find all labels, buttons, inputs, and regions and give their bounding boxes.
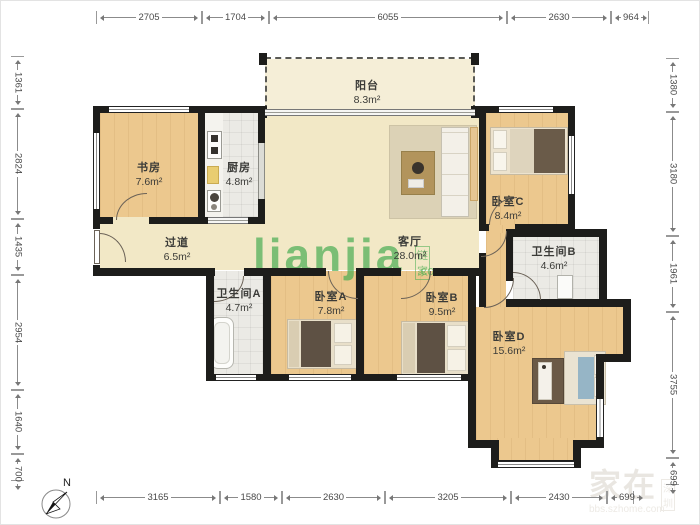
dimension-arrow bbox=[670, 304, 676, 311]
dimension-arrow bbox=[643, 15, 650, 21]
dimension-line bbox=[672, 320, 673, 372]
watermark-corner-url: bbs.szhome.com bbox=[589, 504, 665, 515]
dimension-arrow bbox=[97, 15, 104, 21]
dimension-arrow bbox=[503, 495, 510, 501]
window bbox=[568, 136, 575, 194]
wall bbox=[93, 217, 113, 224]
pillow bbox=[447, 325, 466, 347]
window bbox=[93, 133, 100, 209]
dimension-arrow bbox=[283, 495, 290, 501]
pillow bbox=[493, 152, 507, 171]
dimension-arrow bbox=[612, 15, 619, 21]
wall bbox=[263, 276, 271, 376]
dimension-right: 3755 bbox=[666, 312, 679, 458]
dimension-line bbox=[17, 435, 18, 446]
dimension-line bbox=[228, 497, 238, 498]
dimension-line bbox=[672, 398, 673, 450]
wall bbox=[468, 268, 476, 445]
wall bbox=[259, 53, 267, 65]
dimension-right: 3180 bbox=[666, 112, 679, 236]
dimension-arrow bbox=[261, 15, 268, 21]
dimension-line bbox=[17, 177, 18, 211]
dimension-line bbox=[17, 345, 18, 382]
dimension-line bbox=[277, 17, 375, 18]
dimension-arrow bbox=[599, 495, 606, 501]
dimension-arrow bbox=[15, 267, 21, 274]
dimension-arrow bbox=[274, 495, 281, 501]
dimension-value: 3180 bbox=[668, 161, 678, 186]
dimension-arrow bbox=[670, 313, 676, 320]
dimension-arrow bbox=[270, 15, 277, 21]
floor-plan: lianjia 链家 .com 家在 深圳 bbs.szhome.com N 书… bbox=[1, 1, 699, 524]
dimension-line bbox=[17, 283, 18, 320]
dimension-line bbox=[171, 497, 212, 498]
wall bbox=[623, 299, 631, 362]
dimension-value: 964 bbox=[621, 13, 641, 23]
dimension-value: 1580 bbox=[238, 493, 263, 503]
dimension-arrow bbox=[508, 15, 515, 21]
dimension-arrow bbox=[670, 113, 676, 120]
dimension-arrow bbox=[15, 391, 21, 398]
dimension-line bbox=[210, 17, 223, 18]
window bbox=[258, 143, 265, 199]
window bbox=[265, 109, 475, 116]
wall bbox=[506, 299, 631, 307]
dimension-line bbox=[401, 17, 499, 18]
wall bbox=[599, 229, 607, 307]
pillow bbox=[334, 323, 352, 343]
dimension-right: 1380 bbox=[666, 58, 679, 112]
dimension-value: 3755 bbox=[668, 372, 678, 397]
dimension-top: 964 bbox=[611, 11, 649, 24]
dimension-bottom: 3205 bbox=[385, 491, 511, 504]
floor-plan-canvas: lianjia 链家 .com 家在 深圳 bbs.szhome.com N 书… bbox=[0, 0, 700, 525]
dimension-left: 2824 bbox=[11, 109, 24, 219]
dimension-line bbox=[672, 244, 673, 261]
dimension-line bbox=[515, 17, 546, 18]
dimension-left: 1435 bbox=[11, 219, 24, 275]
dimension-value: 2630 bbox=[546, 13, 571, 23]
wall bbox=[198, 113, 205, 217]
study-floor bbox=[100, 113, 198, 217]
wall bbox=[358, 268, 401, 276]
dimension-value: 6055 bbox=[375, 13, 400, 23]
dimension-arrow bbox=[670, 450, 676, 457]
dimension-arrow bbox=[15, 101, 21, 108]
dimension-line bbox=[393, 497, 435, 498]
dimension-value: 699 bbox=[668, 468, 678, 488]
bed-duvet bbox=[301, 321, 331, 367]
wall bbox=[149, 217, 206, 224]
dimension-arrow bbox=[670, 237, 676, 244]
dimension-value: 699 bbox=[617, 493, 637, 503]
dimension-value: 2705 bbox=[136, 13, 161, 23]
dimension-arrow bbox=[194, 15, 201, 21]
dimension-line bbox=[104, 17, 136, 18]
dimension-top: 2630 bbox=[507, 11, 611, 24]
dimension-value: 1435 bbox=[13, 234, 23, 259]
compass-north-label: N bbox=[63, 477, 71, 489]
dimension-right: 1961 bbox=[666, 236, 679, 312]
dimension-line bbox=[572, 497, 599, 498]
bathtub-inner bbox=[214, 322, 230, 364]
bed-duvet bbox=[534, 129, 565, 173]
dimension-value: 1380 bbox=[668, 72, 678, 97]
sofa bbox=[441, 127, 469, 217]
dimension-value: 2630 bbox=[321, 493, 346, 503]
dimension-arrow bbox=[15, 211, 21, 218]
window bbox=[499, 106, 553, 113]
dimension-value: 700 bbox=[13, 464, 23, 484]
dimension-line bbox=[346, 497, 377, 498]
dimension-arrow bbox=[670, 104, 676, 111]
window bbox=[208, 217, 248, 224]
dimension-bottom: 699 bbox=[607, 491, 634, 504]
dimension-line bbox=[264, 497, 274, 498]
dimension-bottom: 1580 bbox=[220, 491, 282, 504]
dimension-bottom: 3165 bbox=[96, 491, 220, 504]
window bbox=[397, 374, 461, 381]
dimension-arrow bbox=[377, 495, 384, 501]
dimension-value: 2824 bbox=[13, 151, 23, 176]
dimension-left: 2954 bbox=[11, 275, 24, 390]
window bbox=[109, 106, 189, 113]
dimension-arrow bbox=[386, 495, 393, 501]
dimension-left: 1361 bbox=[11, 56, 24, 109]
dimension-arrow bbox=[608, 495, 615, 501]
wall bbox=[93, 268, 215, 276]
dimension-arrow bbox=[15, 486, 21, 493]
dimension-line bbox=[248, 17, 261, 18]
wardrobe-knob bbox=[542, 365, 546, 369]
dimension-arrow bbox=[670, 459, 676, 466]
pillow bbox=[447, 349, 466, 371]
wall bbox=[468, 440, 499, 448]
dimension-arrow bbox=[499, 15, 506, 21]
bedroom-d-bay-floor bbox=[497, 438, 575, 462]
dimension-arrow bbox=[212, 495, 219, 501]
dimension-bottom: 2430 bbox=[511, 491, 607, 504]
dimension-arrow bbox=[670, 490, 676, 497]
pillow bbox=[334, 345, 352, 365]
teapot bbox=[412, 162, 424, 174]
window bbox=[289, 374, 351, 381]
dimension-value: 3205 bbox=[435, 493, 460, 503]
dimension-arrow bbox=[603, 15, 610, 21]
dimension-line bbox=[290, 497, 321, 498]
dimension-value: 3165 bbox=[145, 493, 170, 503]
dimension-arrow bbox=[15, 446, 21, 453]
dimension-line bbox=[17, 227, 18, 234]
stove-burner bbox=[211, 135, 218, 142]
sink-basin bbox=[210, 193, 219, 202]
toilet bbox=[557, 275, 573, 299]
dimension-top: 1704 bbox=[202, 11, 269, 24]
dimension-top: 2705 bbox=[96, 11, 202, 24]
dimension-arrow bbox=[97, 495, 104, 501]
window bbox=[498, 461, 574, 468]
dimension-line bbox=[672, 287, 673, 304]
tv-console bbox=[470, 127, 478, 201]
dimension-arrow bbox=[15, 276, 21, 283]
compass: N bbox=[37, 477, 81, 523]
dimension-arrow bbox=[221, 495, 228, 501]
wall bbox=[506, 229, 607, 237]
dimension-arrow bbox=[15, 57, 21, 64]
wall bbox=[206, 268, 214, 381]
dimension-top: 6055 bbox=[269, 11, 507, 24]
wall bbox=[479, 106, 486, 231]
dimension-arrow bbox=[670, 228, 676, 235]
dimension-line bbox=[461, 497, 503, 498]
dimension-line bbox=[519, 497, 546, 498]
dimension-line bbox=[104, 497, 145, 498]
dimension-value: 1961 bbox=[668, 261, 678, 286]
pillow bbox=[493, 130, 507, 149]
dimension-line bbox=[17, 117, 18, 151]
dimension-line bbox=[672, 120, 673, 161]
dimension-value: 1640 bbox=[13, 409, 23, 434]
dimension-line bbox=[17, 260, 18, 267]
dimension-value: 2954 bbox=[13, 320, 23, 345]
bed-duvet bbox=[417, 323, 445, 373]
sink-faucet bbox=[211, 204, 217, 210]
wall bbox=[244, 268, 326, 276]
dimension-left: 1640 bbox=[11, 390, 24, 454]
dimension-value: 1704 bbox=[223, 13, 248, 23]
dimension-left: 700 bbox=[11, 454, 24, 481]
dimension-value: 1361 bbox=[13, 70, 23, 95]
balcony-window-dashed bbox=[265, 57, 475, 111]
wall bbox=[479, 224, 489, 231]
dimension-arrow bbox=[15, 220, 21, 227]
stove-burner bbox=[211, 147, 218, 154]
dimension-value: 2430 bbox=[546, 493, 571, 503]
cutting-board bbox=[207, 166, 219, 184]
dimension-line bbox=[162, 17, 194, 18]
bed-frame bbox=[289, 321, 299, 367]
bed-frame bbox=[403, 323, 415, 373]
dimension-line bbox=[17, 398, 18, 409]
dimension-arrow bbox=[203, 15, 210, 21]
tray bbox=[408, 179, 424, 188]
dimension-arrow bbox=[512, 495, 519, 501]
dimension-arrow bbox=[639, 495, 646, 501]
bed-blanket bbox=[578, 357, 594, 399]
dimension-arrow bbox=[670, 59, 676, 66]
dimension-line bbox=[672, 187, 673, 228]
wall bbox=[471, 53, 479, 65]
window bbox=[596, 399, 604, 437]
dimension-arrow bbox=[15, 455, 21, 462]
dimension-arrow bbox=[15, 110, 21, 117]
window bbox=[216, 374, 256, 381]
dimension-line bbox=[572, 17, 603, 18]
compass-needle-icon bbox=[37, 477, 81, 523]
dimension-arrow bbox=[15, 382, 21, 389]
bed-sheet bbox=[510, 129, 534, 173]
dimension-right: 699 bbox=[666, 458, 679, 485]
dimension-bottom: 2630 bbox=[282, 491, 385, 504]
